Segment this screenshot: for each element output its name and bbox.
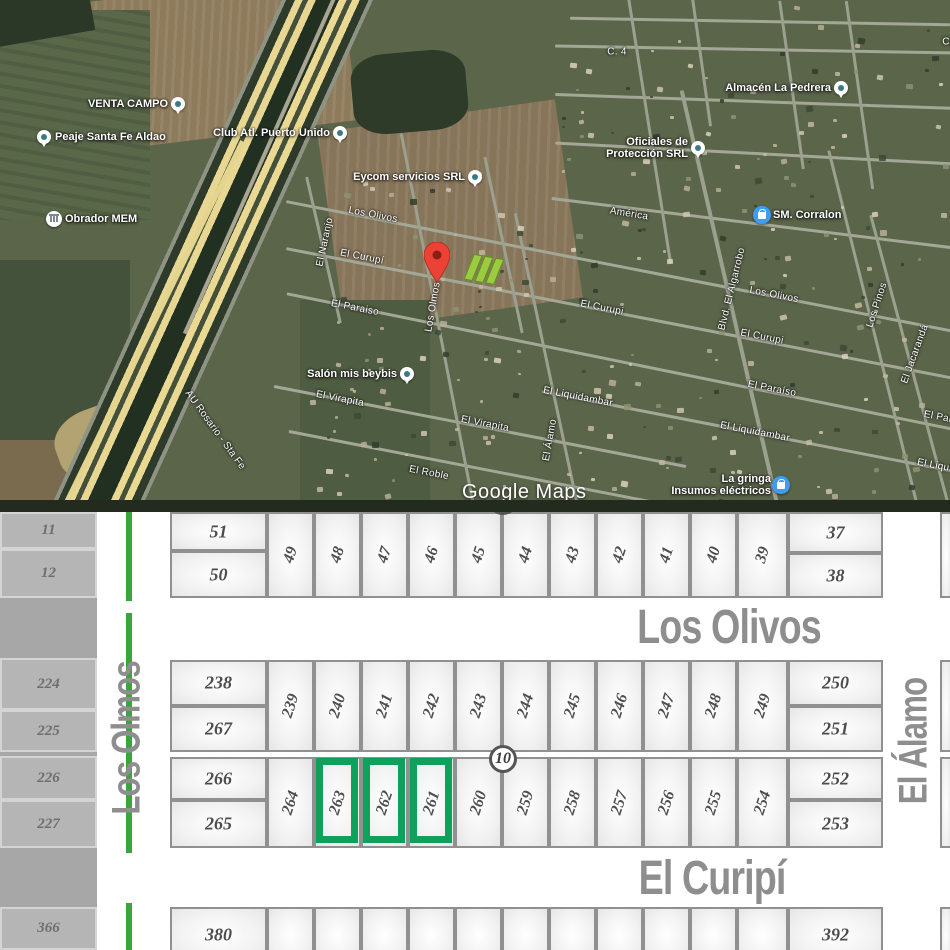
lot-258: 258 [549,757,596,848]
lot-41: 41 [643,512,690,598]
lot-243: 243 [455,660,502,752]
house-blob [834,71,839,75]
house-blob [350,388,354,392]
place-pin-icon[interactable] [400,367,414,381]
lot-partial [940,660,950,752]
strip-lot-366: 366 [0,907,97,950]
place-pin-icon[interactable] [37,130,51,144]
house-blob [637,256,642,260]
lot-number: 244 [513,692,538,720]
house-blob [368,333,371,336]
house-blob [663,250,666,253]
poi-label-text: Insumos eléctricos [671,485,771,497]
house-blob [700,269,706,274]
lot-number: 250 [822,673,849,694]
lot-partial [940,512,950,598]
house-blob [678,40,681,43]
plat-street-el-curipi: El Curipí [639,850,786,905]
block-number: 10 [495,750,511,768]
tree-cluster [349,47,471,137]
poi-label-text: SM. Corralon [773,209,841,221]
plat-street-el-alamo: El Álamo [891,678,937,804]
lot-241: 241 [361,660,408,752]
lot-number: 265 [205,814,232,835]
house-blob [713,390,718,394]
house-blob [791,182,796,186]
street-label: C. 4 [942,37,950,48]
poi-label[interactable]: Almacén La Pedrera [725,82,831,94]
poi-label-text: Salón mis beybis [307,368,397,380]
house-blob [879,155,886,161]
house-blob [919,403,926,408]
lot-number: 256 [654,788,679,816]
lot-253: 253 [788,800,883,848]
lot-number: 247 [654,692,679,720]
house-blob [940,213,946,218]
street-divider-green [126,512,132,601]
lot-number: 245 [560,692,585,720]
lot-number: 38 [827,565,845,586]
place-pin-icon[interactable] [333,126,347,140]
house-blob [483,357,487,360]
lot-number: 48 [326,545,348,566]
lot-244: 244 [502,660,549,752]
house-blob [840,344,848,351]
lot-249: 249 [737,660,788,752]
lot-number: 366 [37,920,60,937]
house-blob [707,349,712,353]
house-blob [630,354,633,357]
house-blob [562,170,565,173]
parcel-plat: 1112224225226227366 Los Olivos El Curipí… [0,512,950,950]
lot-392: 392 [788,907,883,950]
house-blob [863,398,867,401]
lot-number: 240 [325,692,350,720]
house-blob [902,453,908,458]
house-blob [764,258,767,260]
highlighted-lot-outline [410,758,452,843]
lot-389: 389 [643,907,690,950]
lot-number: 46 [420,545,442,566]
house-blob [354,413,361,419]
lot-383: 383 [361,907,408,950]
lot-248: 248 [690,660,737,752]
lot-number: 242 [419,692,444,720]
lot-266: 266 [170,757,267,800]
highlighted-lots-overlay [465,253,503,290]
lot-254: 254 [737,757,788,848]
house-blob [550,277,557,282]
poi-label-text: Peaje Santa Fe Aldao [55,131,166,143]
strip-lot-11: 11 [0,512,97,549]
house-blob [365,359,369,362]
house-blob [832,494,838,499]
place-pin-icon[interactable] [834,81,848,95]
poi-label[interactable]: Club Atl. Puerto Unido [213,127,330,139]
lot-number: 253 [822,814,849,835]
house-blob [656,86,663,92]
house-blob [783,176,788,180]
lot-number: 248 [701,692,726,720]
lot-number: 224 [37,676,60,693]
house-blob [457,379,460,381]
lot-number: 239 [278,692,303,720]
poi-label[interactable]: Salón mis beybis [307,368,397,380]
house-blob [716,188,721,192]
house-blob [442,352,449,358]
lot-250: 250 [788,660,883,706]
poi-label-text: La gringa [721,473,771,485]
lot-252: 252 [788,757,883,800]
lot-number: 50 [210,564,228,585]
plat-street-los-olmos: Los Olmos [104,661,150,814]
lot-number: 11 [41,522,55,539]
poi-label[interactable]: SM. Corralon [773,209,841,221]
lot-39: 39 [737,512,788,598]
house-blob [411,434,416,438]
poi-label[interactable]: Eycom servicios SRL [353,171,465,183]
poi-label[interactable]: VENTA CAMPO [88,98,168,110]
house-blob [522,280,529,286]
lot-number: 243 [466,692,491,720]
lot-number: 259 [513,788,538,816]
house-blob [448,441,455,447]
house-blob [798,454,802,458]
satellite-map[interactable]: C. 4C. 4Los OlivosLos OlivosEl CurupíEl … [0,0,950,512]
lot-46: 46 [408,512,455,598]
lot-49: 49 [267,512,314,598]
house-blob [774,256,779,260]
lot-number: 51 [210,521,228,542]
house-blob [825,488,832,494]
lot-256: 256 [643,757,690,848]
lot-388: 388 [596,907,643,950]
house-blob [902,337,907,342]
house-blob [735,165,740,169]
house-blob [667,259,674,265]
lot-385: 385 [455,907,502,950]
plat-street-los-olivos: Los Olivos [637,599,821,654]
map-edge [0,500,950,512]
lot-partial [940,907,950,950]
house-blob [855,43,861,48]
strip-lot-12: 12 [0,549,97,598]
poi-label-text: Club Atl. Puerto Unido [213,127,330,139]
strip-lot-227: 227 [0,800,97,848]
house-blob [478,289,482,292]
lot-387: 387 [549,907,596,950]
house-blob [742,209,747,213]
house-blob [818,25,824,30]
lot-number: 266 [205,768,232,789]
strip-lot-224: 224 [0,658,97,710]
house-blob [731,114,736,118]
house-blob [380,327,384,330]
lot-43: 43 [549,512,596,598]
strip-lot-225: 225 [0,710,97,752]
lot-44: 44 [502,512,549,598]
lot-242: 242 [408,660,455,752]
house-blob [819,431,823,434]
lot-42: 42 [596,512,643,598]
lot-48: 48 [314,512,361,598]
lot-number: 227 [37,816,60,833]
highlighted-lot-outline [363,758,405,843]
house-blob [591,478,595,481]
lot-245: 245 [549,660,596,752]
lot-number: 257 [607,788,632,816]
house-blob [906,84,913,90]
lot-number: 226 [37,770,60,787]
lot-partial [940,757,950,848]
lot-number: 41 [655,545,677,566]
house-blob [909,485,915,490]
house-blob [629,363,632,366]
lot-390: 390 [690,907,737,950]
house-blob [872,211,878,216]
house-blob [434,329,441,335]
house-blob [486,441,491,446]
lot-381: 381 [267,907,314,950]
lot-number: 392 [822,925,849,946]
lot-number: 225 [37,723,60,740]
house-blob [650,96,653,99]
house-blob [773,143,777,146]
lot-number: 267 [205,719,232,740]
lot-number: 252 [822,768,849,789]
lot-number: 246 [607,692,632,720]
lot-number: 40 [702,545,724,566]
house-blob [524,293,529,297]
poi-label-text: Obrador MEM [65,213,137,225]
lot-number: 49 [279,545,301,566]
lot-50: 50 [170,551,267,598]
place-pin-icon[interactable] [468,170,482,184]
house-blob [817,486,820,488]
lot-386: 386 [502,907,549,950]
screenshot-root: C. 4C. 4Los OlivosLos OlivosEl CurupíEl … [0,0,950,950]
house-blob [317,487,324,492]
house-blob [805,439,812,445]
house-blob [453,307,459,312]
poi-label[interactable]: Oficiales deProtección SRL [606,136,688,160]
house-blob [410,199,417,205]
highlighted-lot-outline [316,758,358,843]
place-pin-icon[interactable] [691,141,705,155]
lot-number: 258 [560,788,585,816]
poi-label[interactable]: Obrador MEM [65,213,137,225]
poi-label-text: Protección SRL [606,148,688,160]
house-blob [594,388,601,394]
house-blob [896,421,900,425]
house-blob [834,428,840,433]
lot-264: 264 [267,757,314,848]
lot-40: 40 [690,512,737,598]
poi-label-text: VENTA CAMPO [88,98,168,110]
lot-number: 12 [41,565,56,582]
poi-label[interactable]: La gringaInsumos eléctricos [671,473,771,497]
house-blob [748,361,754,366]
house-blob [686,177,691,181]
house-blob [588,426,594,431]
lot-47: 47 [361,512,408,598]
house-blob [337,321,340,324]
house-blob [939,83,943,86]
lot-247: 247 [643,660,690,752]
lot-number: 251 [822,719,849,740]
lot-number: 249 [750,692,775,720]
house-blob [623,403,631,409]
house-blob [668,426,673,430]
house-blob [585,68,592,74]
house-blob [872,429,878,434]
house-blob [935,124,940,129]
lot-265: 265 [170,800,267,848]
lot-257: 257 [596,757,643,848]
house-blob [842,134,847,138]
lot-number: 260 [466,788,491,816]
house-blob [942,164,949,170]
house-blob [631,172,636,176]
house-blob [841,206,844,209]
house-blob [807,161,810,164]
house-blob [513,392,520,398]
house-blob [880,230,887,236]
lot-number: 37 [827,522,845,543]
lot-240: 240 [314,660,361,752]
house-blob [780,52,785,56]
lot-239: 239 [267,660,314,752]
lot-number: 254 [750,788,775,816]
lot-38: 38 [788,553,883,598]
house-blob [421,431,427,436]
strip-lot-226: 226 [0,756,97,800]
house-blob [684,185,690,191]
lot-45: 45 [455,512,502,598]
lot-238: 238 [170,660,267,706]
lot-382: 382 [314,907,361,950]
lot-number: 42 [608,545,630,566]
lot-number: 380 [205,925,232,946]
house-blob [420,355,426,360]
house-blob [440,321,447,327]
house-blob [798,131,803,135]
lot-255: 255 [690,757,737,848]
lot-246: 246 [596,660,643,752]
street-divider-green [126,903,132,950]
house-blob [779,284,786,289]
poi-label[interactable]: Peaje Santa Fe Aldao [55,131,166,143]
house-blob [853,70,858,74]
house-blob [785,255,791,260]
house-blob [413,235,418,239]
house-blob [376,358,382,363]
block-number-circle: 10 [489,745,517,773]
poi-label-text: Eycom servicios SRL [353,171,465,183]
house-blob [569,62,576,68]
lot-number: 241 [372,692,397,720]
lot-number: 44 [514,545,536,566]
house-blob [705,77,708,79]
lot-number: 264 [278,788,303,816]
lot-number: 45 [467,545,489,566]
house-blob [927,29,930,32]
house-blob [334,415,338,418]
house-blob [612,487,617,491]
house-blob [611,132,614,134]
adjacent-block-strip: 1112224225226227366 [0,512,97,950]
lot-number: 39 [751,545,773,566]
place-pin-icon[interactable] [171,97,185,111]
location-marker-icon[interactable] [424,242,450,284]
house-blob [771,227,775,230]
house-blob [808,122,814,127]
house-blob [492,327,498,332]
house-blob [593,289,598,293]
shop-pin-icon[interactable] [772,476,790,494]
lot-number: 47 [373,545,395,566]
lot-number: 255 [701,788,726,816]
house-blob [567,473,571,477]
poi-label-text: Oficiales de [626,136,688,148]
house-blob [867,267,872,271]
lot-number: 238 [205,673,232,694]
lot-384: 384 [408,907,455,950]
lot-37: 37 [788,512,883,553]
civic-pin-icon[interactable] [46,211,62,227]
shop-pin-icon[interactable] [753,206,771,224]
lot-267: 267 [170,706,267,752]
lot-251: 251 [788,706,883,752]
street-label: C. 4 [607,47,627,58]
poi-label-text: Almacén La Pedrera [725,82,831,94]
lot-380: 380 [170,907,267,950]
house-blob [374,457,377,460]
house-blob [326,469,333,475]
lot-number: 43 [561,545,583,566]
house-blob [677,408,684,414]
house-blob [372,442,379,448]
house-blob [621,220,629,227]
lot-391: 391 [737,907,788,950]
lot-51: 51 [170,512,267,551]
house-blob [683,211,690,217]
